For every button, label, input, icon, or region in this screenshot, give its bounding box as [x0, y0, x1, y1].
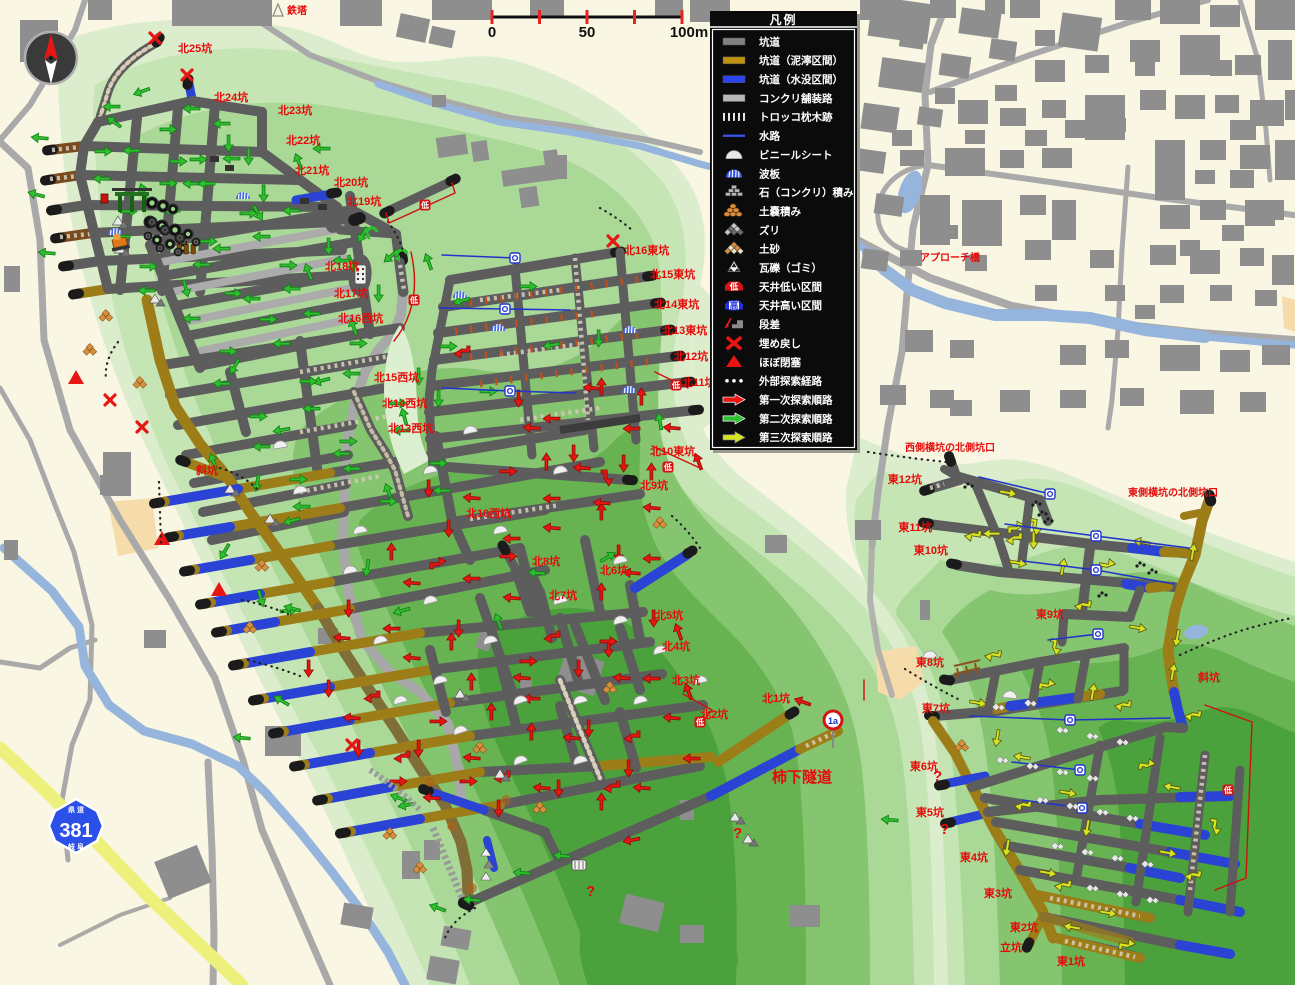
svg-text:坑道: 坑道	[759, 35, 780, 48]
svg-text:381: 381	[59, 820, 92, 842]
svg-text:低: 低	[1223, 785, 1232, 795]
svg-text:東9坑: 東9坑	[1036, 607, 1064, 621]
svg-text:ズリ: ズリ	[759, 224, 780, 237]
svg-text:0: 0	[488, 24, 496, 41]
svg-text:段差: 段差	[759, 318, 780, 331]
svg-text:東11坑: 東11坑	[898, 520, 932, 534]
svg-text:天井低い区間: 天井低い区間	[759, 280, 822, 293]
svg-text:ビニールシート: ビニールシート	[759, 148, 833, 161]
svg-text:東4坑: 東4坑	[960, 850, 988, 864]
svg-text:北14東坑: 北14東坑	[654, 297, 699, 311]
svg-text:ほぼ閉塞: ほぼ閉塞	[759, 356, 801, 369]
svg-text:低: 低	[671, 380, 680, 390]
svg-text:西側横坑の北側坑口: 西側横坑の北側坑口	[905, 441, 995, 454]
svg-text:埋め戻し: 埋め戻し	[759, 337, 801, 350]
svg-text:瓦礫（ゴミ）: 瓦礫（ゴミ）	[759, 262, 822, 275]
svg-text:北12坑: 北12坑	[674, 349, 708, 363]
svg-text:北25坑: 北25坑	[178, 41, 212, 55]
svg-text:坑道（水没区間）: 坑道（水没区間）	[759, 73, 843, 86]
svg-text:北2坑: 北2坑	[700, 707, 728, 721]
svg-text:岐 阜: 岐 阜	[68, 842, 84, 851]
svg-text:第二次探索順路: 第二次探索順路	[759, 412, 833, 425]
svg-text:北3坑: 北3坑	[672, 673, 700, 687]
svg-text:東1坑: 東1坑	[1057, 954, 1085, 968]
svg-text:北15西坑: 北15西坑	[374, 370, 419, 384]
svg-text:東5坑: 東5坑	[916, 805, 944, 819]
svg-text:凡例: 凡例	[769, 12, 797, 27]
svg-text:低: 低	[409, 295, 418, 305]
svg-text:高: 高	[730, 300, 739, 310]
svg-text:北1坑: 北1坑	[762, 691, 790, 705]
svg-text:北15東坑: 北15東坑	[650, 267, 695, 281]
svg-text:アプローチ橋: アプローチ橋	[920, 251, 981, 264]
svg-text:北13東坑: 北13東坑	[662, 323, 707, 337]
svg-text:土嚢積み: 土嚢積み	[759, 205, 801, 218]
svg-text:北9坑: 北9坑	[640, 478, 668, 492]
svg-text:東3坑: 東3坑	[984, 886, 1012, 900]
svg-text:北14西坑: 北14西坑	[382, 396, 427, 410]
svg-text:低: 低	[663, 462, 672, 472]
svg-text:波板: 波板	[759, 167, 780, 180]
svg-text:北24坑: 北24坑	[214, 90, 248, 104]
svg-text:北21坑: 北21坑	[295, 163, 329, 177]
svg-text:?: ?	[586, 883, 595, 900]
svg-text:低: 低	[420, 200, 429, 210]
svg-text:北10西坑: 北10西坑	[466, 506, 511, 520]
svg-text:坑道（泥濘区間）: 坑道（泥濘区間）	[759, 54, 843, 67]
svg-text:県 道: 県 道	[68, 805, 84, 814]
svg-text:50: 50	[579, 24, 596, 41]
svg-text:北22坑: 北22坑	[286, 133, 320, 147]
svg-text:北10東坑: 北10東坑	[650, 444, 695, 458]
svg-text:100m: 100m	[670, 24, 708, 41]
svg-text:第一次探索順路: 第一次探索順路	[759, 394, 833, 407]
svg-text:天井高い区間: 天井高い区間	[759, 299, 822, 312]
svg-text:北17坑: 北17坑	[334, 286, 368, 300]
svg-text:立坑: 立坑	[1000, 940, 1022, 954]
svg-text:北23坑: 北23坑	[278, 103, 312, 117]
svg-text:斜坑: 斜坑	[1197, 670, 1220, 684]
svg-text:北16西坑: 北16西坑	[338, 311, 383, 325]
svg-text:?: ?	[940, 821, 949, 838]
svg-text:水路: 水路	[758, 130, 780, 143]
svg-text:北20坑: 北20坑	[334, 175, 368, 189]
svg-text:北7坑: 北7坑	[549, 588, 577, 602]
svg-text:外部探索経路: 外部探索経路	[758, 375, 822, 388]
svg-text:北4坑: 北4坑	[662, 639, 690, 653]
svg-text:斜坑: 斜坑	[195, 463, 218, 477]
svg-text:北13西坑: 北13西坑	[388, 421, 433, 435]
svg-text:東7坑: 東7坑	[922, 701, 950, 715]
svg-text:東8坑: 東8坑	[916, 655, 944, 669]
svg-text:東10坑: 東10坑	[914, 543, 948, 557]
svg-text:?: ?	[733, 825, 742, 842]
svg-text:?: ?	[933, 768, 942, 785]
svg-text:コンクリ舗装路: コンクリ舗装路	[759, 92, 833, 105]
svg-text:トロッコ枕木跡: トロッコ枕木跡	[759, 111, 833, 124]
svg-text:鉄塔: 鉄塔	[287, 4, 308, 17]
svg-text:北6坑: 北6坑	[600, 563, 628, 577]
svg-text:東12坑: 東12坑	[888, 472, 922, 486]
svg-text:北16東坑: 北16東坑	[624, 243, 669, 257]
svg-text:柿下隧道: 柿下隧道	[772, 768, 832, 786]
svg-text:北8坑: 北8坑	[532, 554, 560, 568]
svg-text:土砂: 土砂	[759, 243, 780, 256]
svg-text:北18坑: 北18坑	[325, 259, 359, 273]
svg-text:第三次探索順路: 第三次探索順路	[759, 431, 833, 444]
svg-text:1a: 1a	[828, 716, 839, 726]
svg-text:東側横坑の北側坑口: 東側横坑の北側坑口	[1128, 486, 1218, 499]
svg-text:東2坑: 東2坑	[1010, 920, 1038, 934]
svg-text:石（コンクリ）積み: 石（コンクリ）積み	[758, 186, 854, 199]
svg-text:低: 低	[729, 282, 739, 292]
svg-text:北5坑: 北5坑	[655, 608, 683, 622]
svg-text:北19坑: 北19坑	[347, 194, 381, 208]
